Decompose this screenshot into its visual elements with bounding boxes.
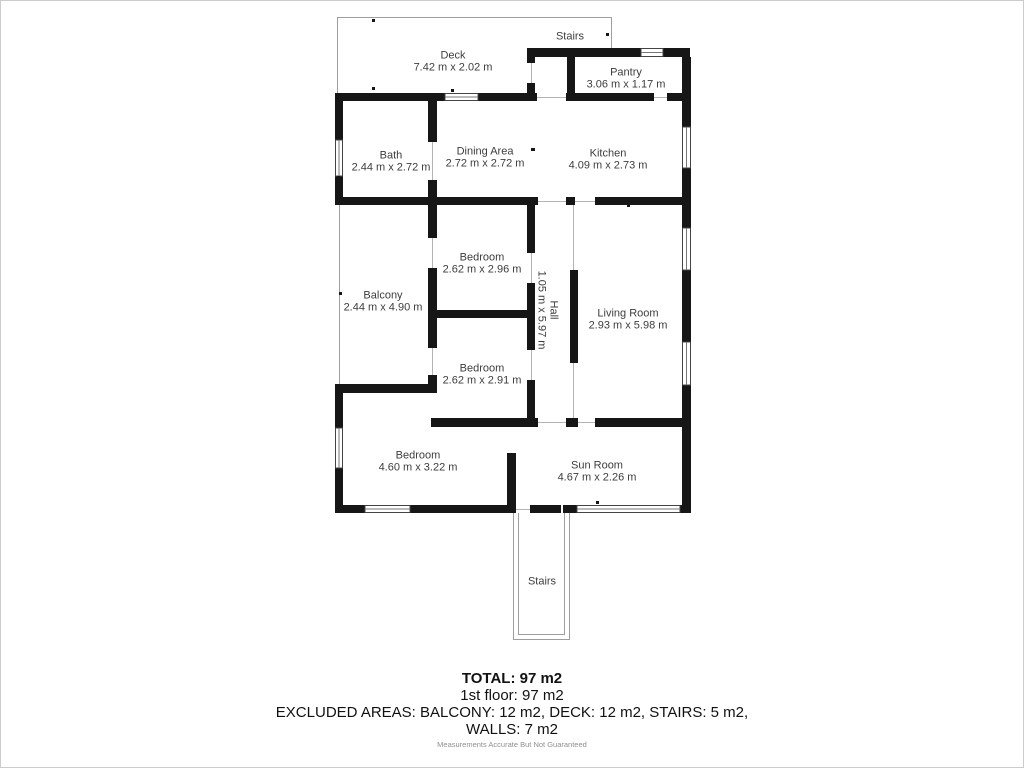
summary-block: TOTAL: 97 m2 1st floor: 97 m2 EXCLUDED A… — [0, 670, 1024, 738]
room-name: Bath — [380, 150, 403, 162]
room-label-bedroom-1: Bedroom 2.62 m x 2.96 m — [443, 253, 522, 276]
room-name: Bedroom — [396, 450, 441, 462]
room-name: Hall — [548, 301, 560, 320]
room-dims: 2.62 m x 2.91 m — [443, 375, 522, 387]
summary-excluded-1: EXCLUDED AREAS: BALCONY: 12 m2, DECK: 12… — [0, 704, 1024, 721]
walls — [335, 48, 691, 513]
room-dims: 7.42 m x 2.02 m — [414, 62, 493, 74]
room-dims: 4.09 m x 2.73 m — [569, 160, 648, 172]
disclaimer-text: Measurements Accurate But Not Guaranteed — [0, 740, 1024, 749]
windows — [336, 49, 691, 513]
summary-floor: 1st floor: 97 m2 — [0, 687, 1024, 704]
room-label-sun-room: Sun Room 4.67 m x 2.26 m — [558, 461, 637, 484]
room-dims: 2.44 m x 4.90 m — [344, 302, 423, 314]
room-name: Pantry — [610, 67, 642, 79]
room-dims: 2.72 m x 2.72 m — [446, 158, 525, 170]
room-label-balcony: Balcony 2.44 m x 4.90 m — [344, 291, 423, 314]
room-name: Balcony — [363, 290, 402, 302]
room-name: Dining Area — [457, 146, 514, 158]
room-name: Stairs — [556, 30, 584, 42]
room-name: Kitchen — [590, 148, 627, 160]
room-label-deck: Deck 7.42 m x 2.02 m — [414, 51, 493, 74]
summary-total: TOTAL: 97 m2 — [0, 670, 1024, 687]
room-label-bedroom-2: Bedroom 2.62 m x 2.91 m — [443, 364, 522, 387]
room-label-pantry: Pantry 3.06 m x 1.17 m — [587, 68, 666, 91]
room-dims: 2.93 m x 5.98 m — [589, 320, 668, 332]
room-label-stairs-bottom: Stairs — [528, 576, 556, 588]
room-dims: 4.60 m x 3.22 m — [379, 462, 458, 474]
room-dims: 2.62 m x 2.96 m — [443, 264, 522, 276]
room-name: Bedroom — [460, 252, 505, 264]
room-dims: 2.44 m x 2.72 m — [352, 162, 431, 174]
room-name: Bedroom — [460, 363, 505, 375]
room-name: Sun Room — [571, 460, 623, 472]
room-label-living-room: Living Room 2.93 m x 5.98 m — [589, 309, 668, 332]
room-dims: 4.67 m x 2.26 m — [558, 472, 637, 484]
room-label-bath: Bath 2.44 m x 2.72 m — [352, 151, 431, 174]
room-dims: 1.05 m x 5.97 m — [536, 271, 548, 350]
room-label-hall: Hall 1.05 m x 5.97 m — [536, 271, 559, 350]
room-name: Deck — [440, 50, 465, 62]
summary-excluded-2: WALLS: 7 m2 — [0, 721, 1024, 738]
room-label-bedroom-3: Bedroom 4.60 m x 3.22 m — [379, 451, 458, 474]
room-dims: 3.06 m x 1.17 m — [587, 79, 666, 91]
room-label-kitchen: Kitchen 4.09 m x 2.73 m — [569, 149, 648, 172]
room-name: Stairs — [528, 575, 556, 587]
room-name: Living Room — [597, 308, 658, 320]
room-label-dining-area: Dining Area 2.72 m x 2.72 m — [446, 147, 525, 170]
room-label-stairs-top: Stairs — [556, 31, 584, 43]
